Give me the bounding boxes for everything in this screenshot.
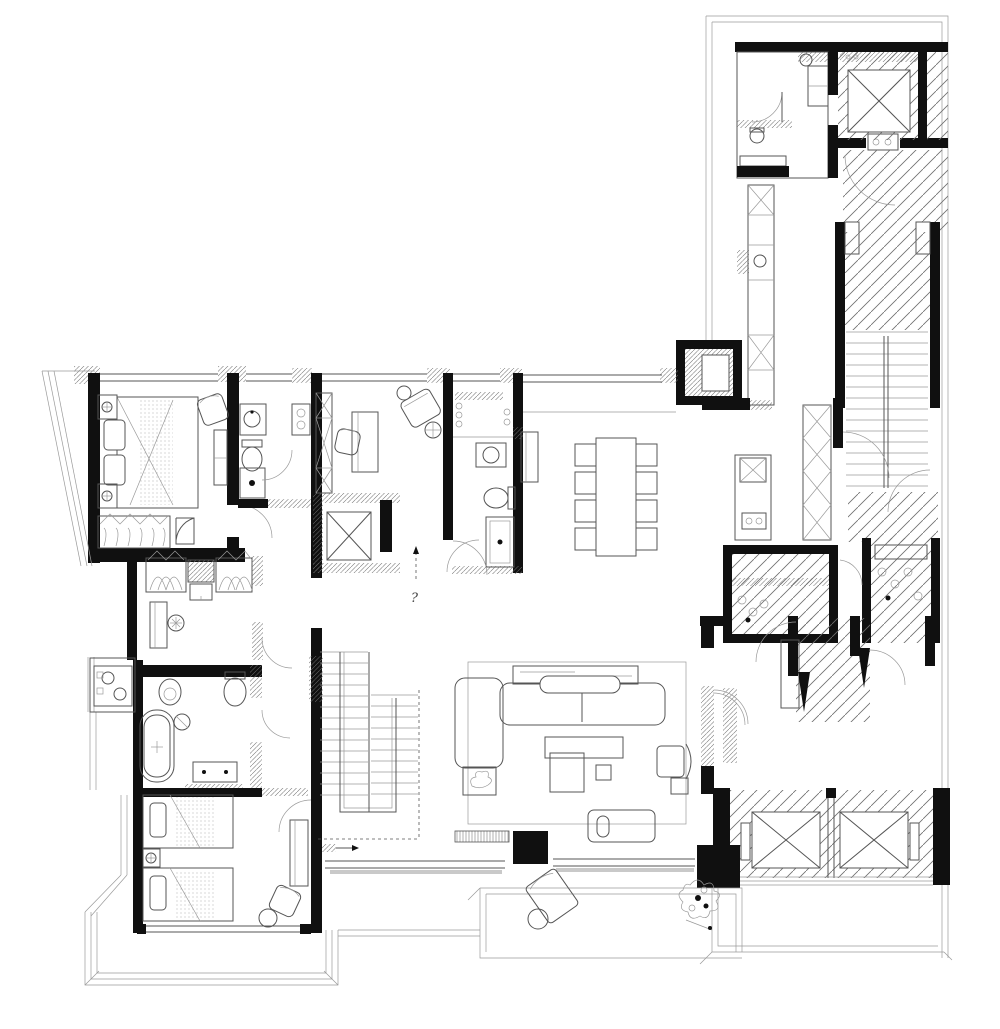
washer-icon — [102, 672, 114, 684]
dining-table — [596, 438, 636, 556]
kids-chair — [268, 884, 303, 919]
floor-plan-canvas: ? — [0, 0, 1000, 1029]
terrace-south-main — [338, 868, 742, 958]
desk-chair — [334, 427, 362, 456]
dining-area — [575, 438, 657, 556]
master-bathroom — [238, 404, 313, 508]
pillow — [104, 455, 125, 485]
stair-direction-arrow — [322, 844, 359, 852]
pillow — [150, 803, 166, 837]
kids-bedroom — [143, 795, 311, 927]
living-room — [455, 662, 691, 842]
bedside-console — [214, 430, 227, 485]
bay-window-lines — [42, 371, 95, 566]
kids-desk — [290, 820, 308, 886]
toilet-icon — [750, 129, 764, 143]
stairs — [309, 628, 419, 933]
family-bathroom — [133, 665, 308, 797]
round-side-table — [528, 909, 548, 929]
sofa-pillow — [540, 676, 620, 693]
shaft-enclosure — [313, 493, 400, 573]
sink-icon — [754, 255, 766, 267]
chaise — [455, 678, 503, 768]
floor-lamp-icon — [425, 422, 441, 438]
stair-treads-right-run — [371, 695, 418, 794]
stool-icon — [259, 909, 277, 927]
terrace-right-parapet — [700, 878, 952, 964]
stair-handrail — [340, 652, 396, 812]
oven-x-icon — [740, 458, 766, 482]
tall-cabinet-x-column — [803, 405, 831, 540]
plan-note: ? — [411, 591, 419, 606]
core-kitchen-strip — [737, 185, 774, 405]
cooktop-icon — [742, 513, 766, 529]
bidet-icon — [159, 679, 181, 705]
bedroom-bench — [98, 514, 170, 548]
master-bed — [104, 397, 198, 508]
toilet-icon — [242, 440, 262, 471]
sideboard — [521, 432, 538, 482]
side-cube — [596, 765, 611, 780]
corner-table — [176, 518, 194, 544]
nightstand — [98, 395, 117, 419]
core-laundry-bath — [737, 52, 828, 178]
lounge-chair — [525, 868, 580, 925]
pantry-shaft-box — [676, 340, 742, 405]
core-elevator-room — [838, 52, 948, 140]
nightstand — [143, 849, 160, 867]
basin-icon — [483, 447, 499, 463]
elevator-bank — [713, 788, 950, 885]
tall-unit-x-icon — [748, 185, 774, 370]
dresser — [150, 602, 167, 648]
tv-bench — [588, 810, 655, 842]
toilet-icon — [224, 672, 246, 706]
bedroom-chair — [196, 392, 230, 426]
elevator-shaft-x-icon — [848, 70, 910, 132]
dressing-room — [133, 551, 292, 677]
desk — [352, 412, 378, 472]
side-table — [397, 386, 411, 400]
laundry-room — [90, 658, 135, 712]
floor-plan-drawing: ? — [0, 0, 1000, 1029]
nightstand — [98, 484, 117, 508]
second-bathroom — [452, 392, 522, 575]
coffee-table-low — [550, 753, 584, 792]
twin-bed-1 — [143, 795, 233, 848]
wardrobe-shelf — [188, 560, 214, 600]
twin-bed-2 — [143, 868, 233, 921]
sofa — [455, 676, 665, 768]
core-top-wall — [735, 42, 948, 52]
stool-icon — [168, 615, 184, 631]
bathtub-icon — [140, 710, 174, 782]
elevator-car-2 — [840, 812, 919, 868]
elevator-car-1 — [741, 812, 820, 868]
core-upper-corridor — [835, 150, 948, 408]
shower-icon — [486, 517, 514, 567]
toilet-icon — [484, 487, 515, 509]
pillow — [104, 420, 125, 450]
pillow — [150, 876, 166, 910]
terrace-south-left — [85, 912, 338, 985]
washer-tower — [292, 404, 310, 435]
shaft-x-icon — [327, 512, 371, 560]
floor-grille — [455, 831, 509, 842]
dryer-icon — [114, 688, 126, 700]
double-vanity — [185, 762, 243, 791]
core-kitchen-lower — [702, 398, 938, 542]
